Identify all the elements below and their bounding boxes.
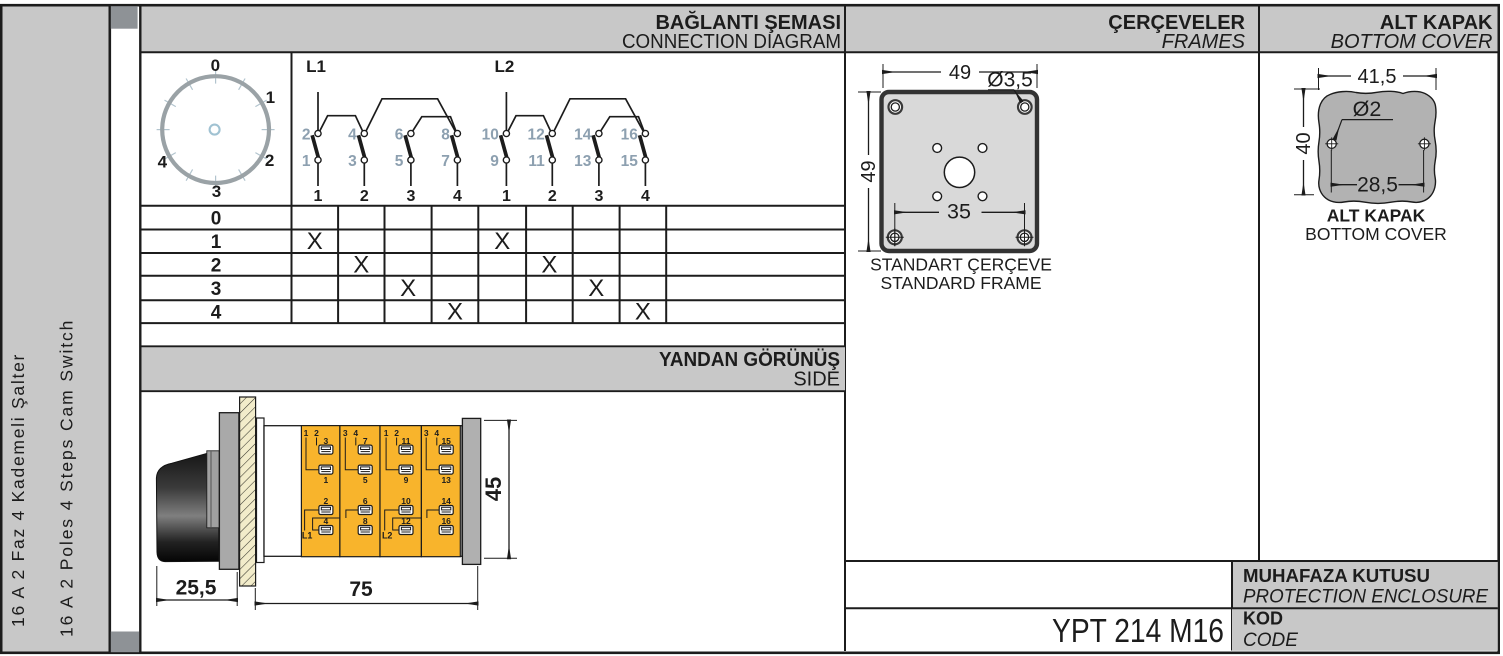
svg-text:3: 3 [211, 279, 222, 300]
svg-text:25,5: 25,5 [176, 577, 217, 600]
svg-text:4: 4 [211, 303, 222, 324]
svg-text:X: X [494, 228, 510, 255]
svg-text:4: 4 [641, 188, 650, 205]
svg-text:1: 1 [304, 428, 309, 438]
svg-text:2: 2 [324, 496, 329, 506]
svg-text:X: X [447, 299, 463, 326]
svg-text:3: 3 [343, 428, 348, 438]
svg-text:1: 1 [302, 153, 311, 170]
svg-text:2: 2 [211, 255, 222, 276]
svg-text:FRAMES: FRAMES [1162, 31, 1246, 53]
svg-text:49: 49 [949, 62, 971, 84]
svg-text:L1: L1 [302, 531, 313, 541]
svg-text:2: 2 [360, 188, 369, 205]
svg-text:4: 4 [348, 127, 357, 144]
svg-text:35: 35 [947, 200, 971, 224]
svg-text:13: 13 [574, 153, 592, 170]
svg-text:14: 14 [441, 496, 451, 506]
svg-text:11: 11 [528, 153, 545, 170]
svg-text:41,5: 41,5 [1358, 66, 1397, 88]
svg-text:16 A 2 Faz 4 Kademeli Şalter: 16 A 2 Faz 4 Kademeli Şalter [8, 353, 28, 627]
svg-text:PROTECTION ENCLOSURE: PROTECTION ENCLOSURE [1243, 587, 1488, 608]
svg-text:40: 40 [1293, 132, 1315, 154]
svg-text:STANDART ÇERÇEVE: STANDART ÇERÇEVE [870, 255, 1052, 275]
svg-text:X: X [353, 251, 369, 278]
svg-text:CODE: CODE [1243, 630, 1298, 651]
svg-text:X: X [635, 299, 651, 326]
svg-text:BOTTOM COVER: BOTTOM COVER [1331, 31, 1493, 53]
svg-text:3: 3 [348, 153, 357, 170]
svg-text:SIDE: SIDE [793, 369, 840, 391]
svg-text:3: 3 [424, 428, 429, 438]
svg-text:2: 2 [302, 127, 311, 144]
svg-text:2: 2 [548, 188, 557, 205]
svg-text:9: 9 [404, 475, 409, 485]
svg-text:12: 12 [528, 127, 545, 144]
svg-text:15: 15 [621, 153, 639, 170]
svg-text:16: 16 [621, 127, 639, 144]
svg-text:5: 5 [395, 153, 404, 170]
svg-text:0: 0 [211, 209, 222, 230]
svg-text:13: 13 [441, 475, 451, 485]
svg-text:15: 15 [441, 436, 451, 446]
svg-text:8: 8 [363, 516, 368, 526]
svg-text:11: 11 [402, 436, 411, 446]
svg-text:75: 75 [349, 578, 373, 601]
svg-text:49: 49 [858, 160, 880, 182]
svg-text:4: 4 [353, 428, 358, 438]
svg-text:L1: L1 [306, 57, 326, 76]
svg-text:8: 8 [441, 127, 450, 144]
svg-text:1: 1 [314, 188, 323, 205]
svg-text:KOD: KOD [1243, 609, 1283, 629]
svg-text:16 A 2 Poles 4 Steps Cam Switc: 16 A 2 Poles 4 Steps Cam Switch [57, 319, 77, 637]
svg-text:7: 7 [441, 153, 450, 170]
svg-text:Ø3,5: Ø3,5 [987, 69, 1033, 92]
svg-text:1: 1 [324, 475, 329, 485]
svg-text:9: 9 [490, 153, 499, 170]
svg-text:3: 3 [324, 436, 329, 446]
svg-text:10: 10 [482, 127, 499, 144]
svg-text:45: 45 [481, 477, 506, 501]
svg-text:1: 1 [211, 232, 222, 253]
svg-text:2: 2 [394, 428, 399, 438]
svg-text:4: 4 [158, 152, 168, 171]
svg-text:3: 3 [406, 188, 415, 205]
svg-text:10: 10 [401, 496, 411, 506]
svg-text:MUHAFAZA KUTUSU: MUHAFAZA KUTUSU [1243, 566, 1430, 586]
svg-text:3: 3 [212, 182, 221, 201]
svg-text:6: 6 [363, 496, 368, 506]
svg-text:Ø2: Ø2 [1353, 97, 1382, 121]
svg-text:STANDARD FRAME: STANDARD FRAME [880, 273, 1041, 293]
svg-text:16: 16 [441, 516, 451, 526]
svg-text:CONNECTION DIAGRAM: CONNECTION DIAGRAM [622, 31, 841, 53]
svg-text:6: 6 [395, 127, 404, 144]
svg-text:0: 0 [211, 56, 220, 75]
svg-text:YPT 214 M16: YPT 214 M16 [1052, 612, 1224, 649]
svg-text:3: 3 [594, 188, 603, 205]
svg-text:ALT KAPAK: ALT KAPAK [1327, 206, 1426, 226]
svg-text:2: 2 [265, 151, 274, 170]
svg-text:X: X [541, 251, 557, 278]
svg-text:L2: L2 [494, 57, 514, 76]
svg-text:1: 1 [266, 88, 275, 107]
svg-text:4: 4 [453, 188, 462, 205]
svg-text:28,5: 28,5 [1357, 173, 1398, 196]
svg-text:BOTTOM COVER: BOTTOM COVER [1305, 224, 1447, 244]
svg-text:L2: L2 [382, 531, 393, 541]
svg-text:14: 14 [574, 127, 592, 144]
svg-text:1: 1 [384, 428, 389, 438]
svg-text:X: X [588, 275, 604, 302]
svg-text:X: X [400, 275, 416, 302]
svg-text:2: 2 [314, 428, 319, 438]
svg-text:X: X [307, 228, 323, 255]
svg-text:4: 4 [434, 428, 439, 438]
svg-text:5: 5 [363, 475, 368, 485]
svg-text:1: 1 [502, 188, 511, 205]
svg-text:7: 7 [363, 436, 368, 446]
